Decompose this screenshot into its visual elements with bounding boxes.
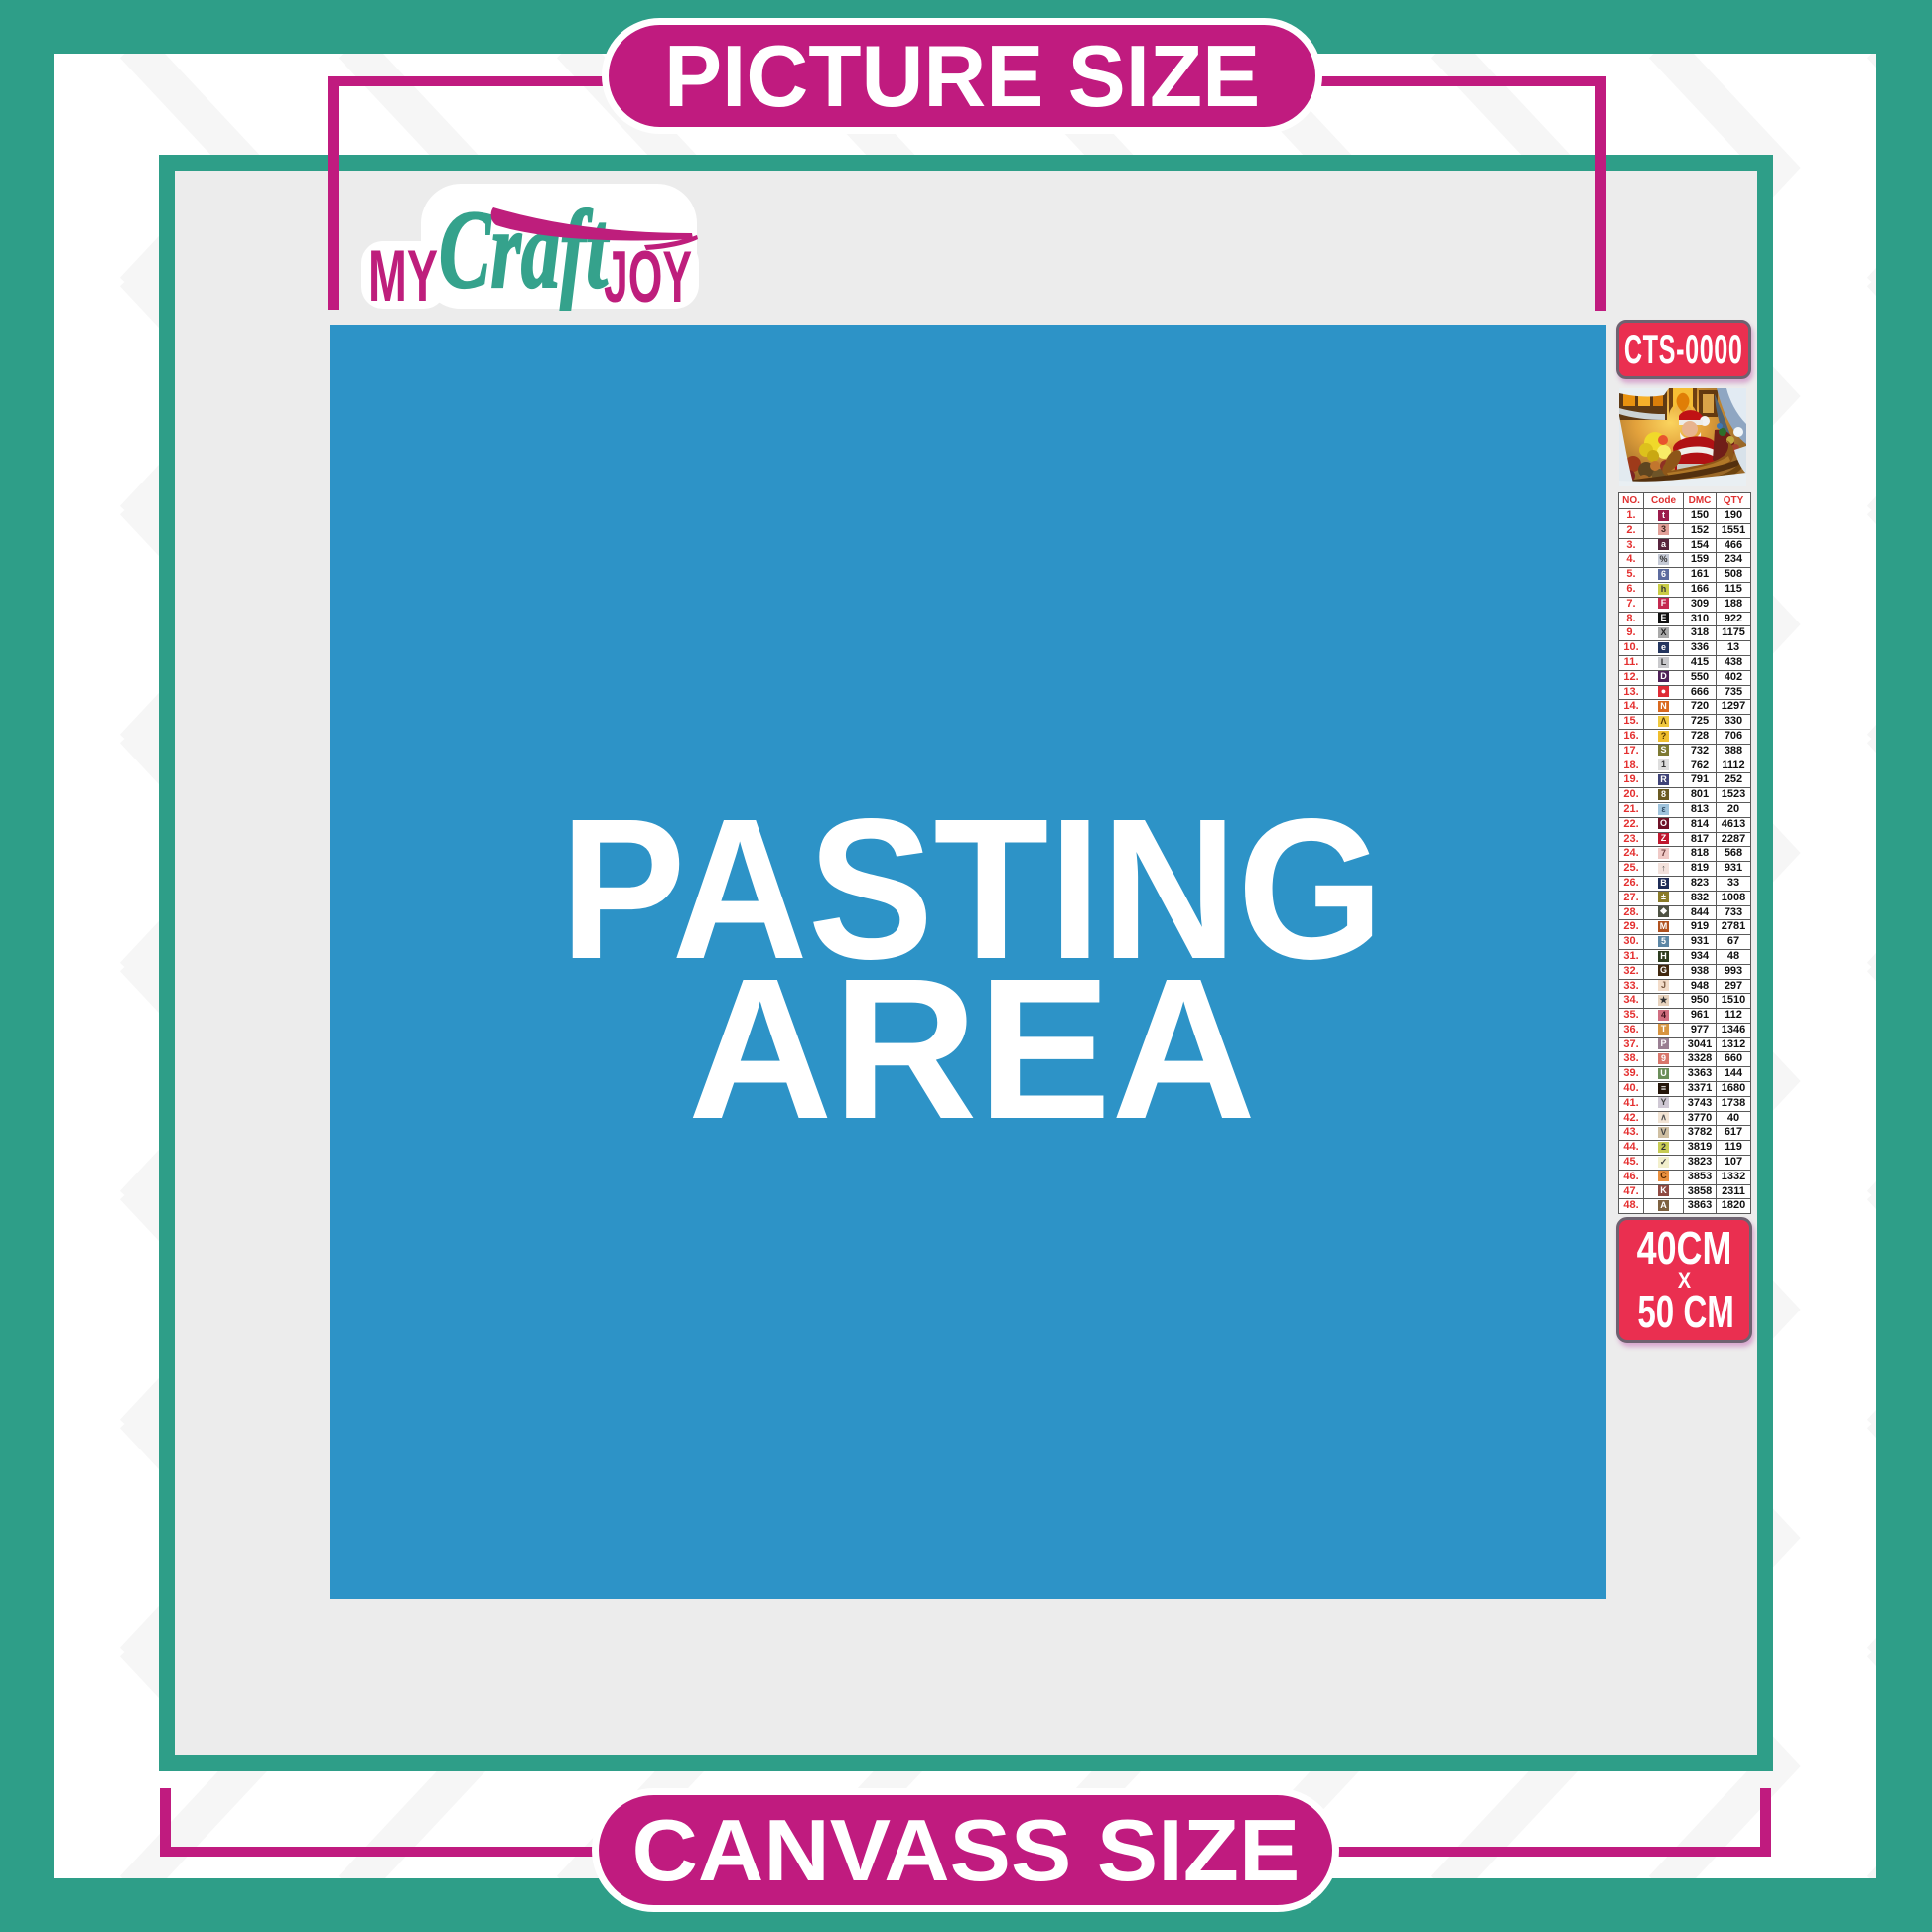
svg-text:JOY: JOY bbox=[604, 237, 692, 311]
svg-text:Craft: Craft bbox=[439, 189, 610, 311]
svg-text:MY: MY bbox=[368, 236, 438, 311]
